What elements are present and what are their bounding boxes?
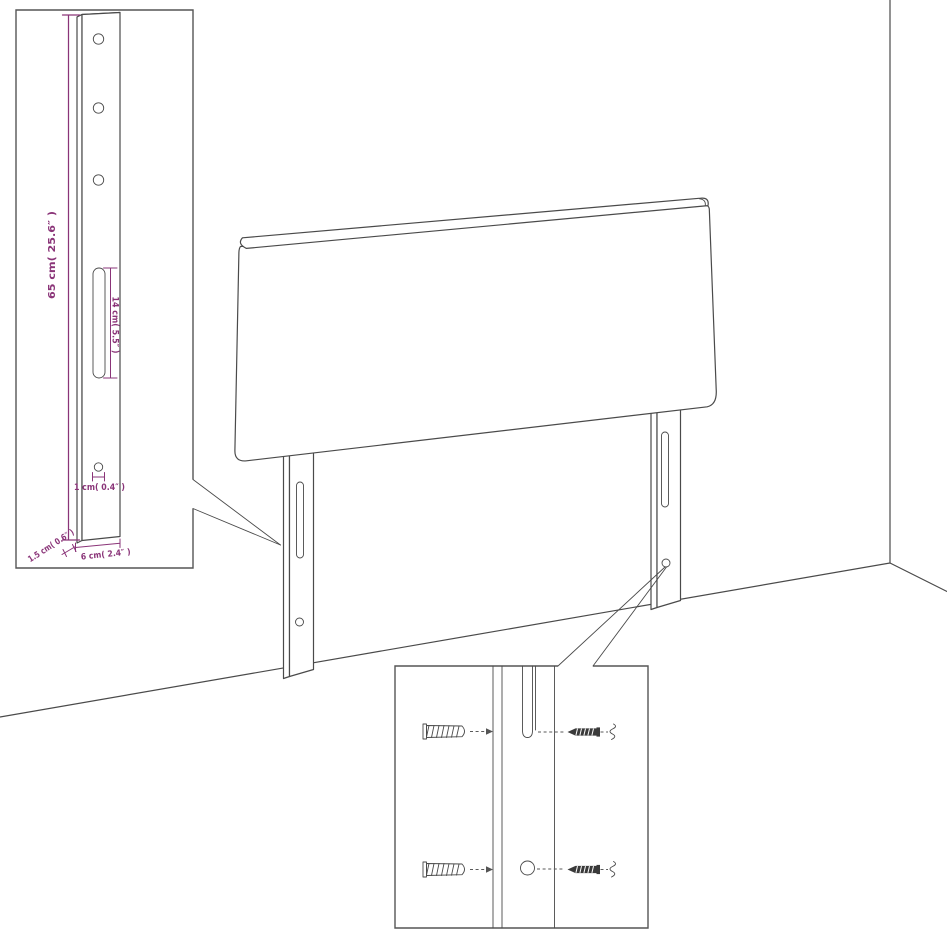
mounting-callout-lines (558, 567, 667, 666)
leg-callout-lines (193, 480, 281, 546)
left-leg-side-face (284, 450, 290, 679)
mounting-callout-line-right (593, 567, 667, 666)
dimension-slot-label: 14 cm( 5.5″ ) (110, 297, 120, 354)
headboard-panel (235, 198, 716, 461)
headboard (235, 198, 716, 678)
inset-leg-small-hole (94, 463, 102, 471)
dimension-hole-label: 1 cm( 0.4″ ) (74, 483, 125, 493)
dimension-height-label: 65 cm( 25.6″ ) (47, 211, 58, 299)
headboard-left-leg (284, 448, 314, 679)
inset-leg-side-face (77, 15, 82, 544)
inset-strip-hole (521, 861, 535, 875)
inset-background (395, 666, 648, 928)
headboard-right-leg (651, 401, 681, 610)
leg-detail-inset: 65 cm( 25.6″ ) 14 cm( 5.5″ ) 1 cm( 0.4″ … (16, 10, 193, 568)
mounting-callout-line-left (558, 567, 665, 666)
mounting-detail-inset (395, 666, 648, 928)
right-leg-hole (662, 559, 670, 567)
assembly-diagram-page: 65 cm( 25.6″ ) 14 cm( 5.5″ ) 1 cm( 0.4″ … (0, 0, 947, 947)
right-leg-slot (662, 432, 669, 507)
inset-leg-hole-3 (93, 175, 103, 185)
inset-leg-hole-1 (93, 34, 103, 44)
left-leg-hole (296, 618, 304, 626)
left-leg-slot (297, 482, 304, 558)
assembly-diagram: 65 cm( 25.6″ ) 14 cm( 5.5″ ) 1 cm( 0.4″ … (0, 0, 947, 947)
leg-callout-line-lower (193, 509, 281, 546)
inset-leg-slot (93, 268, 105, 378)
leg-callout-line-upper (193, 480, 281, 546)
inset-leg-hole-2 (93, 103, 103, 113)
panel-front-face (235, 206, 716, 461)
floor-line-right (890, 563, 947, 592)
